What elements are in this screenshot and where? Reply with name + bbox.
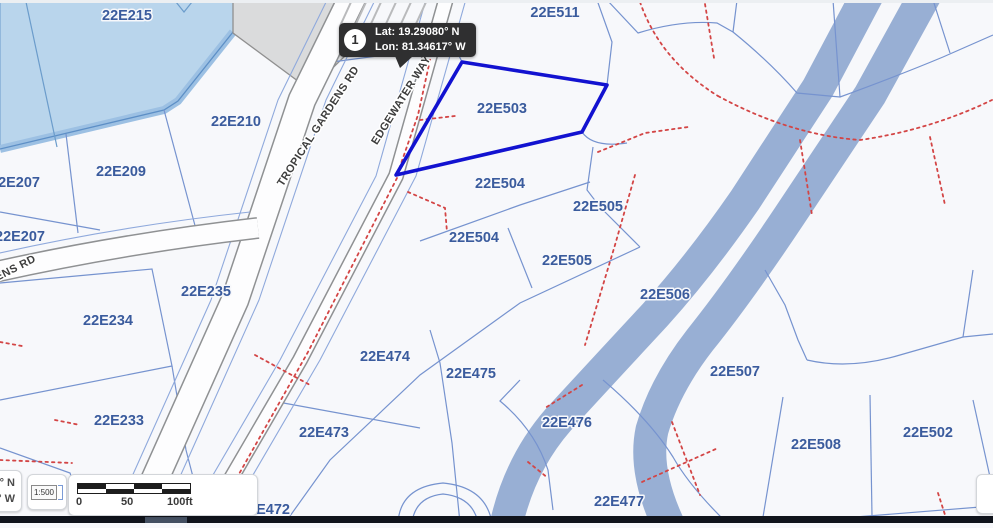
parcel-label: 22E503 <box>477 101 527 117</box>
callout-pointer <box>395 56 413 68</box>
marker-number-badge: 1 <box>344 29 366 51</box>
parcel-label: 22E506 <box>640 287 690 303</box>
bottom-strip-segment <box>145 517 187 523</box>
parcel-label: 22E511 <box>530 5 579 21</box>
parcel-label: 22E502 <box>903 425 953 441</box>
scale-bar-graphic <box>77 483 191 494</box>
bottom-right-control[interactable] <box>976 474 993 514</box>
parcel-label: 22E233 <box>94 413 144 429</box>
coord-lat-partial: ° N <box>0 476 15 492</box>
callout-lat: Lat: 19.29080° N <box>375 25 466 40</box>
parcel-label: 22E505 <box>542 253 592 269</box>
parcel-label: 22E235 <box>181 284 231 300</box>
callout-lon: Lon: 81.34617° W <box>375 40 466 55</box>
parcel-label: 22E210 <box>211 114 261 130</box>
scale-bar-ticks: 0 50 100ft <box>69 494 257 510</box>
cursor-coordinate-readout: ° N ° W <box>0 470 22 512</box>
parcel-label: 22E473 <box>299 425 349 441</box>
parcel-label: 22E504 <box>475 176 525 192</box>
parcel-label: 22E475 <box>446 366 496 382</box>
parcel-label: 22E476 <box>542 415 592 431</box>
map-top-border <box>0 0 993 3</box>
scale-select-bracket-icon <box>58 485 63 500</box>
parcel-label: 22E234 <box>83 313 133 329</box>
scale-tick-100: 100ft <box>167 496 193 508</box>
parcel-label: 22E474 <box>360 349 410 365</box>
scale-tick-50: 50 <box>121 496 133 508</box>
scale-bar: 0 50 100ft <box>68 474 258 516</box>
parcel-label: 22E507 <box>710 364 760 380</box>
parcel-label: 22E504 <box>449 230 499 246</box>
map-scale-value[interactable]: 1:500 <box>31 485 57 500</box>
coordinate-callout[interactable]: 1 Lat: 19.29080° N Lon: 81.34617° W <box>339 23 476 57</box>
parcel-label: 22E207 <box>0 175 40 191</box>
parcel-label: 22E207 <box>0 229 45 245</box>
parcel-label: 22E508 <box>791 437 841 453</box>
scale-tick-0: 0 <box>76 496 82 508</box>
parcel-map-svg[interactable]: TROPICAL GARDENS RDEDGEWATER WAYENS RD 2… <box>0 0 993 523</box>
parcel-label: 22E477 <box>594 494 644 510</box>
parcel-label: 22E215 <box>102 8 152 24</box>
parcel-label: 22E505 <box>573 199 623 215</box>
coord-lon-partial: ° W <box>0 492 15 508</box>
map-scale-select[interactable]: 1:500 <box>27 474 67 510</box>
map-canvas[interactable]: TROPICAL GARDENS RDEDGEWATER WAYENS RD 2… <box>0 0 993 523</box>
parcel-label: 22E209 <box>96 164 146 180</box>
callout-coordinates: Lat: 19.29080° N Lon: 81.34617° W <box>375 25 466 55</box>
